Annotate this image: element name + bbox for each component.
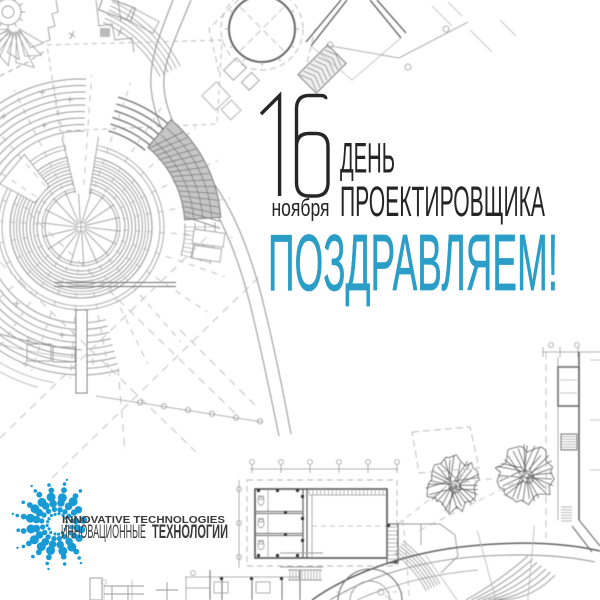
svg-text:ДЕНЬ: ДЕНЬ: [340, 135, 395, 183]
svg-text:ПОЗДРАВЛЯЕМ!: ПОЗДРАВЛЯЕМ!: [268, 218, 558, 307]
svg-text:ИННОВАЦИОННЫЕ: ИННОВАЦИОННЫЕ: [61, 522, 146, 543]
svg-text:ТЕХНОЛОГИИ: ТЕХНОЛОГИИ: [152, 522, 228, 543]
